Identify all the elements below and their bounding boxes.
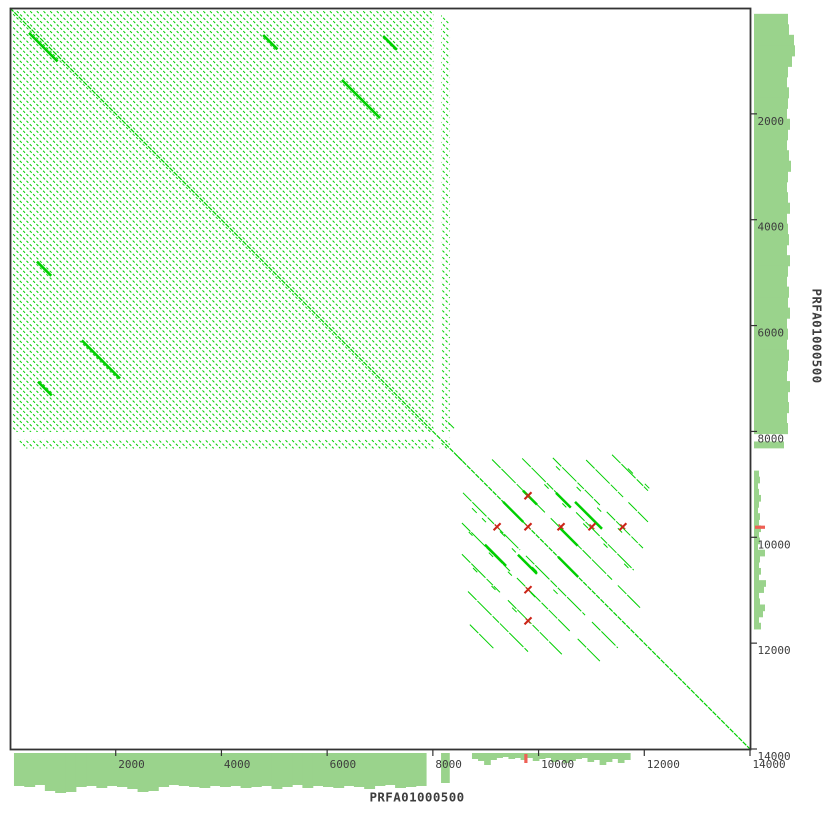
dotplot-canvas: 2000400060008000100001200014000200040006…	[0, 0, 830, 830]
repeat-block-b-lines	[448, 422, 649, 661]
tick-label: 12000	[758, 644, 791, 657]
tick-label: 8000	[758, 432, 785, 445]
tick-label: 6000	[330, 758, 357, 771]
main-diagonal	[10, 8, 750, 749]
tick-label: 10000	[541, 758, 574, 771]
tick-label: 8000	[435, 758, 462, 771]
tick-label: 2000	[758, 115, 785, 128]
tick-label: 4000	[758, 221, 785, 234]
tick-label: 6000	[758, 327, 785, 340]
x-axis-label: PRFA01000500	[369, 790, 464, 805]
tick-label: 14000	[758, 750, 791, 763]
y-axis-label: PRFA01000500	[810, 288, 825, 383]
tick-label: 4000	[224, 758, 251, 771]
tick-label: 2000	[118, 758, 145, 771]
tick-label: 10000	[758, 538, 791, 551]
tick-label: 12000	[647, 758, 680, 771]
dotplot-figure: 2000400060008000100001200014000200040006…	[0, 0, 830, 830]
